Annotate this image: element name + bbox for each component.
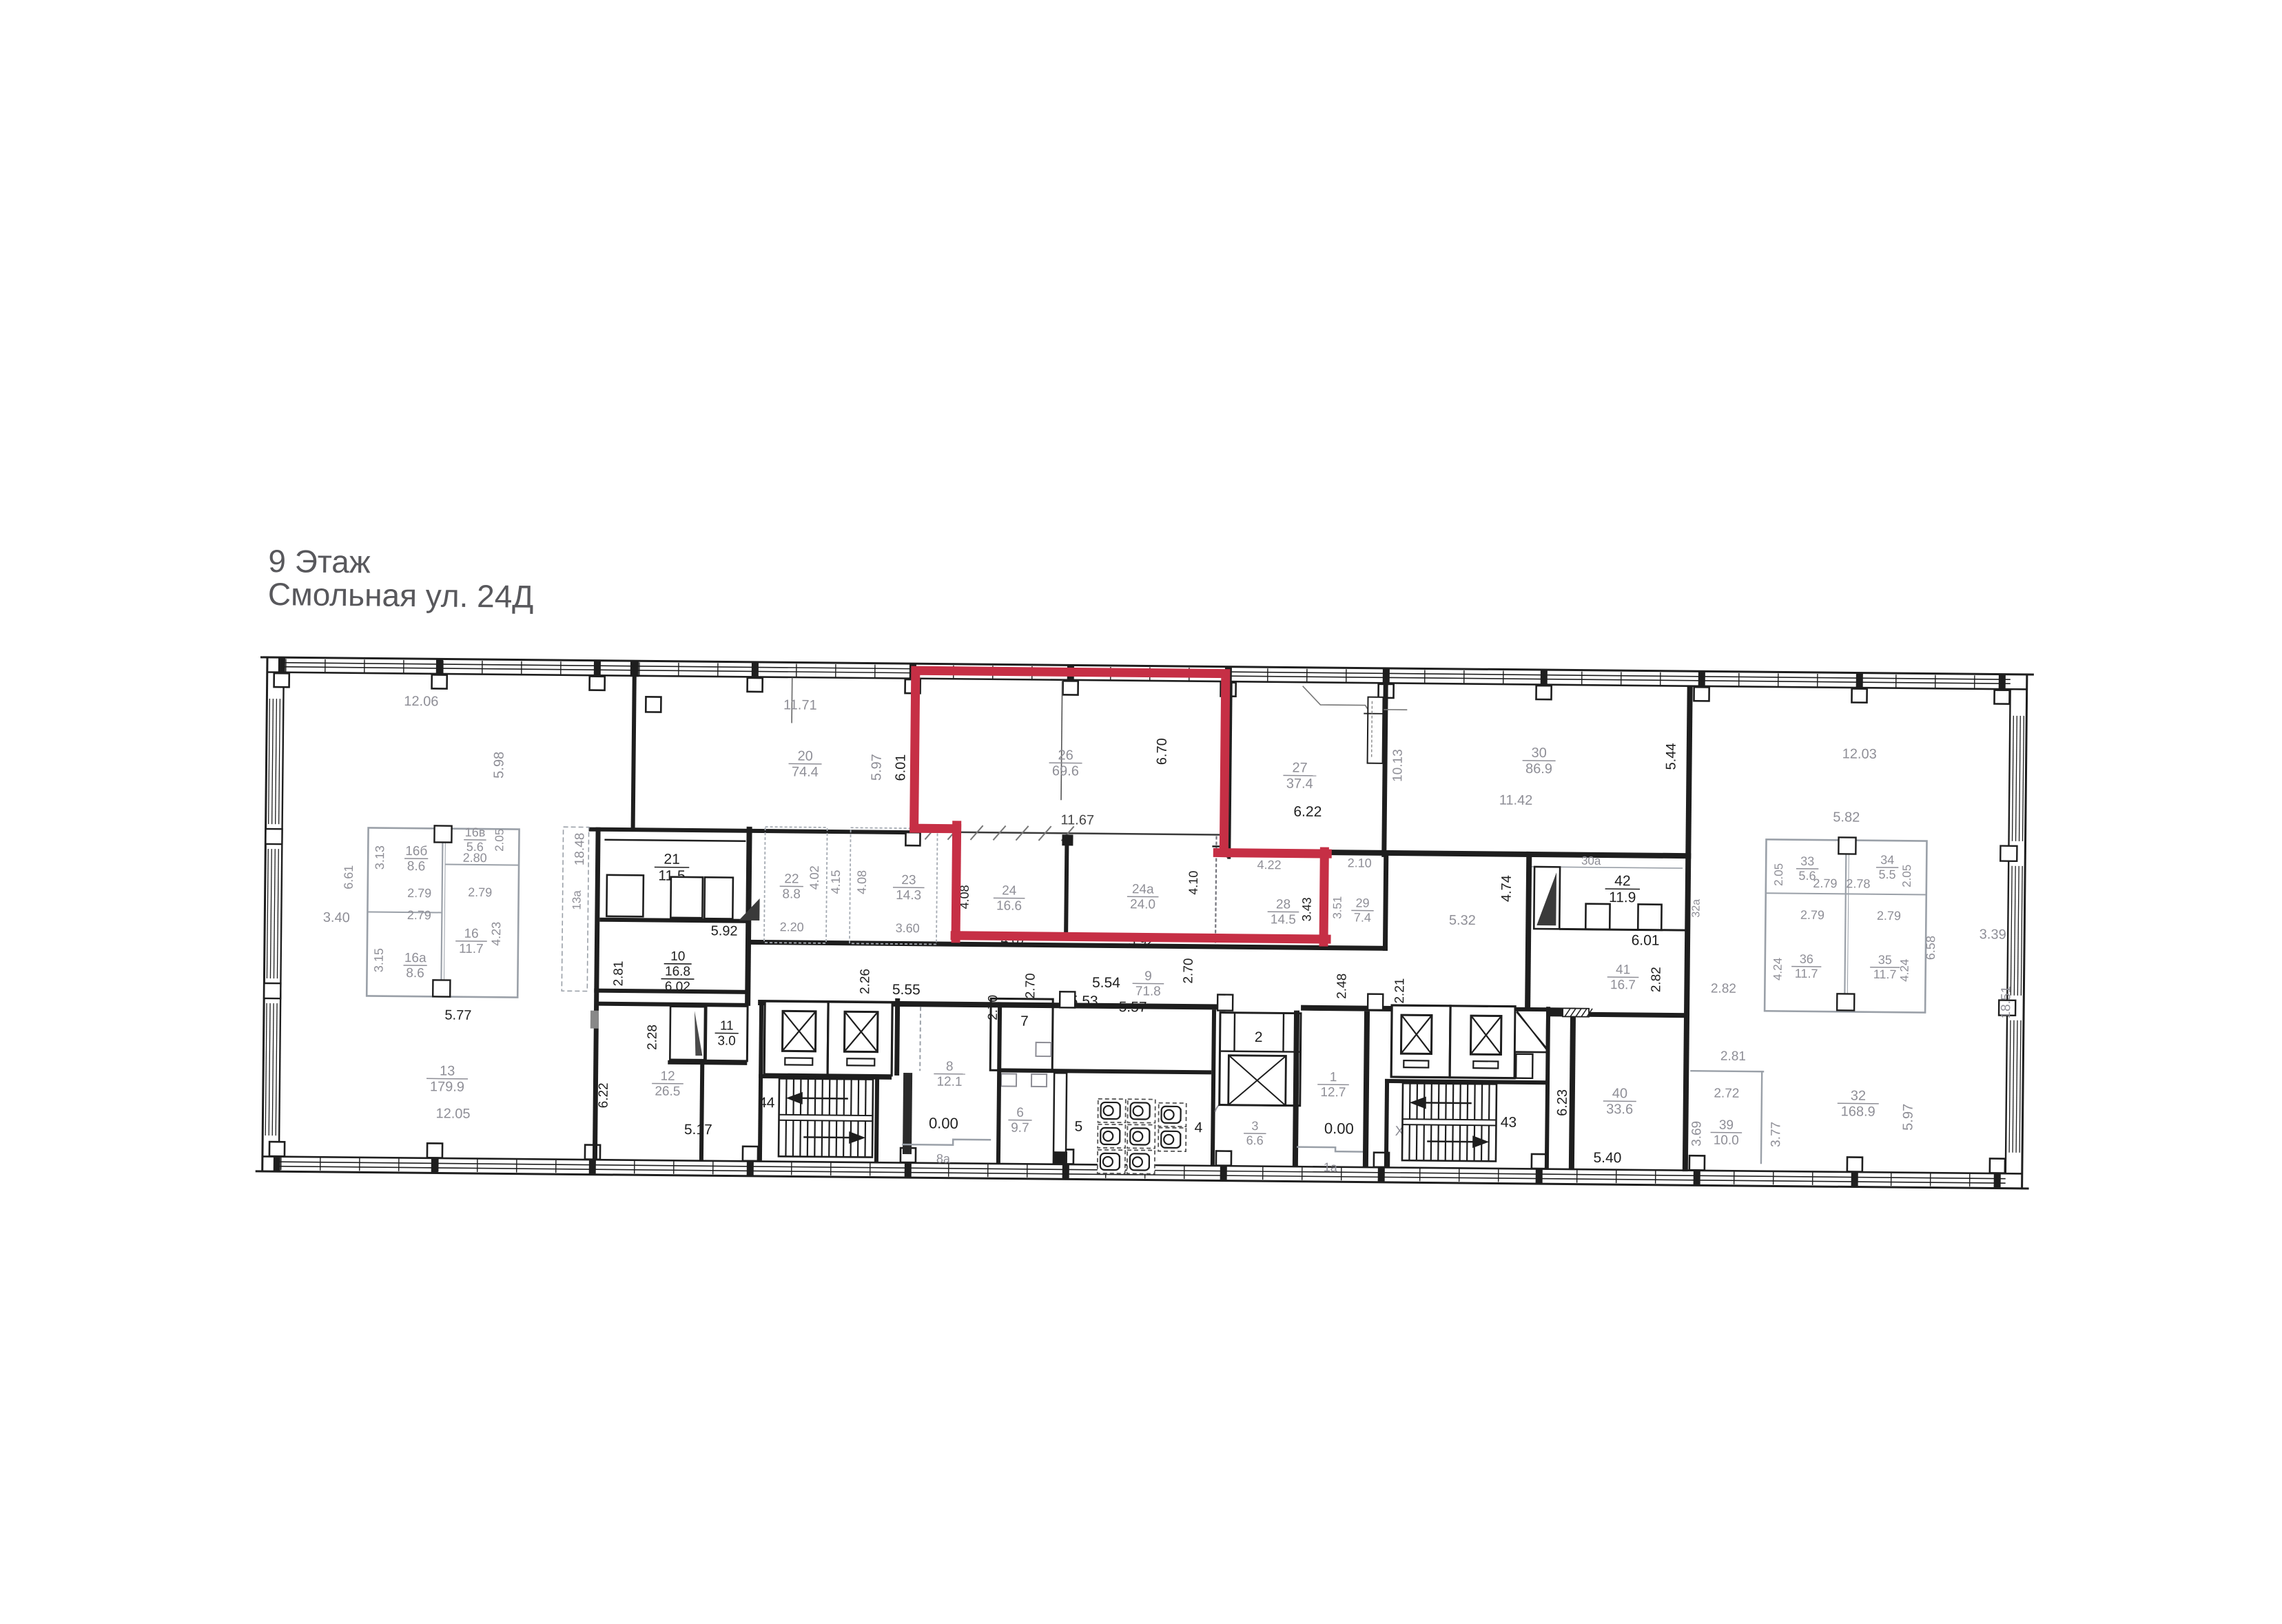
svg-text:69.6: 69.6 [1052,763,1079,779]
svg-text:24.0: 24.0 [1130,897,1155,912]
svg-text:16.8: 16.8 [665,965,690,979]
svg-text:44: 44 [759,1095,775,1111]
svg-text:23: 23 [901,873,916,887]
svg-text:12.05: 12.05 [435,1106,470,1121]
svg-text:5.32: 5.32 [1449,913,1476,928]
svg-text:2.72: 2.72 [1714,1087,1739,1101]
svg-text:3: 3 [1251,1119,1258,1133]
svg-text:5.82: 5.82 [1833,810,1860,825]
svg-text:11.7: 11.7 [1873,967,1897,981]
svg-text:35: 35 [1878,953,1892,967]
svg-text:27: 27 [1292,761,1307,776]
svg-text:5.92: 5.92 [711,923,738,938]
svg-text:5.54: 5.54 [1092,975,1120,991]
svg-text:26.5: 26.5 [655,1085,680,1099]
svg-text:86.9: 86.9 [1525,761,1552,777]
svg-text:33: 33 [1800,854,1814,868]
svg-text:11: 11 [720,1018,734,1033]
svg-text:71.8: 71.8 [1135,984,1161,998]
svg-text:6.70: 6.70 [1155,738,1170,765]
svg-text:5.57: 5.57 [1119,999,1147,1015]
svg-text:13: 13 [440,1063,455,1078]
svg-text:4.08: 4.08 [855,870,869,894]
svg-text:2.70: 2.70 [1023,973,1038,998]
svg-text:179.9: 179.9 [430,1079,464,1094]
svg-text:9 Этаж: 9 Этаж [268,543,371,579]
svg-text:26: 26 [1058,748,1073,763]
svg-text:8: 8 [946,1060,954,1074]
svg-text:7: 7 [1020,1014,1029,1029]
svg-text:2.79: 2.79 [407,886,431,900]
svg-text:11.71: 11.71 [783,697,817,712]
svg-text:32а: 32а [1690,899,1702,918]
svg-text:22: 22 [784,872,799,886]
svg-text:5.97: 5.97 [1900,1104,1915,1131]
svg-text:5.55: 5.55 [892,982,921,998]
svg-text:4.74: 4.74 [1499,875,1514,902]
svg-text:2.26: 2.26 [858,969,872,994]
svg-text:29: 29 [1355,896,1369,909]
svg-text:12.03: 12.03 [1842,746,1877,761]
svg-text:12: 12 [660,1069,675,1084]
svg-text:168.9: 168.9 [1841,1104,1875,1119]
svg-text:5.97: 5.97 [869,754,884,781]
svg-text:6: 6 [1016,1106,1024,1120]
svg-text:11.7: 11.7 [459,942,484,956]
svg-text:10.13: 10.13 [1390,749,1405,782]
svg-text:42: 42 [1614,873,1631,889]
svg-text:24а: 24а [1132,882,1154,896]
svg-text:6.01: 6.01 [893,754,908,781]
svg-text:4: 4 [1194,1120,1202,1135]
svg-text:2: 2 [1255,1029,1263,1045]
svg-text:2.82: 2.82 [1711,981,1736,996]
svg-text:6.23: 6.23 [1555,1089,1570,1116]
svg-text:4.10: 4.10 [1186,871,1200,895]
svg-text:11.7: 11.7 [1795,967,1818,980]
svg-text:39: 39 [1719,1118,1734,1133]
svg-text:2.82: 2.82 [1649,967,1663,992]
svg-text:5.98: 5.98 [491,752,506,779]
svg-text:16.7: 16.7 [1610,978,1636,992]
svg-text:2.81: 2.81 [611,960,626,986]
svg-text:16а: 16а [404,951,426,965]
svg-text:6.01: 6.01 [1632,932,1660,948]
svg-text:3.0: 3.0 [717,1034,736,1048]
svg-text:1а: 1а [1324,1160,1338,1174]
svg-text:8.6: 8.6 [407,859,426,874]
svg-text:74.4: 74.4 [792,764,819,779]
svg-text:2.79: 2.79 [407,908,431,922]
svg-text:2.79: 2.79 [1813,876,1837,890]
svg-text:41: 41 [1616,963,1630,977]
svg-text:32: 32 [1851,1088,1866,1103]
svg-text:4.24: 4.24 [1771,958,1785,980]
svg-text:2.20: 2.20 [780,920,804,934]
svg-text:5.44: 5.44 [1664,743,1679,770]
svg-text:1: 1 [1330,1070,1337,1085]
svg-text:12.1: 12.1 [936,1075,962,1089]
svg-text:40: 40 [1612,1086,1627,1101]
svg-text:2.10: 2.10 [1348,856,1372,870]
svg-text:14.5: 14.5 [1271,912,1296,927]
svg-text:3.13: 3.13 [373,845,387,870]
svg-text:9: 9 [1144,969,1152,983]
svg-text:3.39: 3.39 [1980,927,2006,942]
svg-text:5.77: 5.77 [444,1008,471,1023]
svg-text:4.24: 4.24 [1898,959,1911,982]
svg-text:5.40: 5.40 [1593,1150,1621,1166]
svg-text:16б: 16б [405,844,427,859]
svg-text:12.7: 12.7 [1320,1085,1346,1100]
svg-text:8.8: 8.8 [782,887,801,901]
svg-text:2.81: 2.81 [1720,1049,1746,1064]
svg-text:2.05: 2.05 [1900,865,1913,887]
svg-text:14.3: 14.3 [896,888,921,903]
svg-text:34: 34 [1880,853,1894,867]
svg-text:11.42: 11.42 [1499,792,1533,808]
svg-text:21: 21 [664,852,680,867]
svg-text:16в: 16в [465,825,486,839]
svg-text:18.48: 18.48 [573,833,587,866]
svg-text:4.22: 4.22 [1257,858,1282,872]
svg-text:4.02: 4.02 [808,865,821,890]
svg-text:16.6: 16.6 [996,898,1022,913]
svg-text:11.9: 11.9 [1609,890,1636,905]
svg-text:3.69: 3.69 [1689,1121,1704,1147]
svg-text:2.05: 2.05 [493,829,506,852]
svg-text:8а: 8а [936,1152,951,1166]
svg-text:2.78: 2.78 [1846,876,1870,890]
svg-text:10.0: 10.0 [1714,1133,1739,1148]
svg-text:24: 24 [1002,883,1017,898]
svg-text:37.4: 37.4 [1286,776,1313,791]
svg-text:20: 20 [797,749,812,764]
svg-text:5.17: 5.17 [684,1122,712,1138]
svg-text:6.6: 6.6 [1246,1133,1264,1147]
svg-text:30: 30 [1531,746,1546,761]
svg-text:3.77: 3.77 [1769,1122,1783,1147]
svg-text:9.7: 9.7 [1011,1121,1029,1135]
svg-text:2.79: 2.79 [468,885,492,899]
svg-text:3.15: 3.15 [372,948,386,972]
svg-text:3.60: 3.60 [896,921,920,935]
svg-text:10: 10 [670,949,685,964]
svg-text:5: 5 [1074,1118,1082,1134]
svg-text:5.5: 5.5 [1878,867,1895,881]
svg-text:2.80: 2.80 [463,851,487,865]
svg-text:2.79: 2.79 [1800,908,1824,922]
svg-text:2.79: 2.79 [1877,909,1901,923]
svg-text:4.15: 4.15 [829,870,843,894]
svg-text:28: 28 [1276,897,1291,912]
svg-text:11.67: 11.67 [1060,812,1094,828]
svg-text:6.22: 6.22 [1293,804,1322,820]
svg-text:6.61: 6.61 [342,865,356,890]
svg-text:7.4: 7.4 [1354,911,1371,925]
svg-text:3.40: 3.40 [323,910,350,925]
svg-text:16: 16 [464,927,478,941]
svg-text:33.6: 33.6 [1606,1102,1633,1117]
svg-text:0.00: 0.00 [1324,1120,1354,1137]
svg-text:12.06: 12.06 [404,694,438,709]
svg-text:3.43: 3.43 [1299,897,1313,921]
svg-text:4.23: 4.23 [489,922,503,946]
svg-text:2.70: 2.70 [1181,958,1195,983]
svg-text:6.58: 6.58 [1924,936,1937,960]
svg-text:30а: 30а [1581,854,1601,867]
svg-text:6.22: 6.22 [597,1082,611,1108]
svg-text:36: 36 [1800,952,1813,966]
svg-text:Смольная ул. 24Д: Смольная ул. 24Д [268,576,534,615]
svg-text:3.51: 3.51 [1330,896,1344,919]
svg-text:2.21: 2.21 [1392,978,1407,1003]
svg-text:2.05: 2.05 [1772,863,1785,886]
svg-text:13а: 13а [570,890,583,910]
svg-text:0.00: 0.00 [929,1114,958,1131]
svg-text:2.48: 2.48 [1335,974,1349,999]
svg-text:2.28: 2.28 [645,1025,659,1050]
svg-text:18.51: 18.51 [1999,986,2013,1019]
svg-text:8.6: 8.6 [406,966,424,980]
svg-text:43: 43 [1501,1115,1517,1131]
